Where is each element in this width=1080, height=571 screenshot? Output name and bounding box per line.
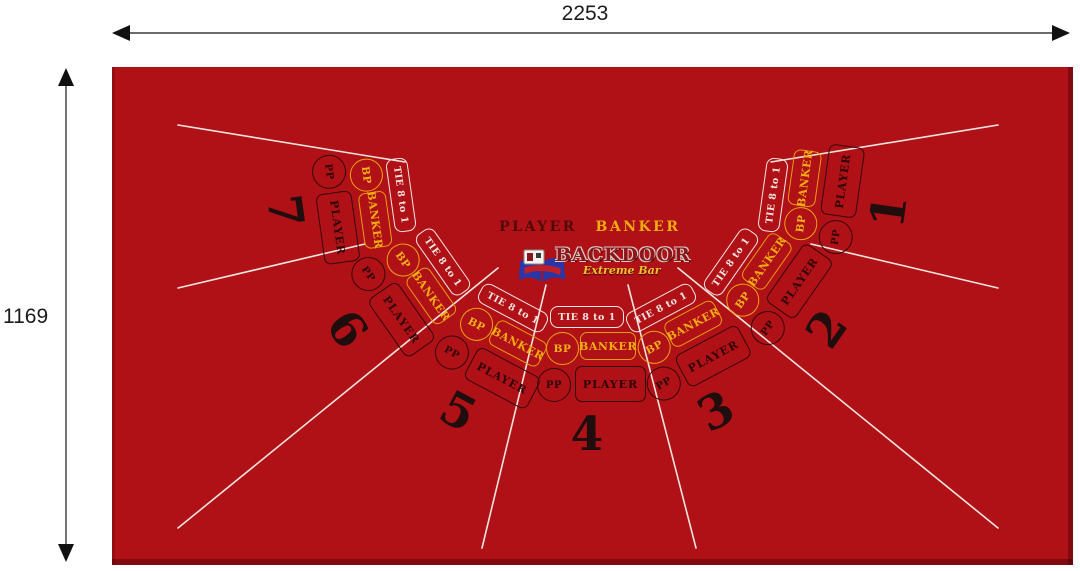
height-dimension-label: 1169 [3, 305, 59, 329]
width-arrow [112, 25, 1070, 41]
logo: BACKDOOR Extreme Bar [514, 244, 684, 288]
seat-number: 7 [245, 123, 324, 299]
center-banker-label: BANKER [583, 219, 693, 235]
logo-tagline: Extreme Bar [583, 264, 661, 277]
bp-bet-circle: BP [348, 156, 385, 193]
layout-drawing: 2253 1169 PLAYER BANKER [0, 0, 1080, 571]
banker-bet-box: BANKER [787, 149, 823, 208]
center-player-label: PLAYER [483, 219, 593, 235]
player-bet-box: PLAYER [575, 366, 646, 402]
player-bet-box: PLAYER [315, 190, 361, 265]
logo-title: BACKDOOR [555, 244, 691, 266]
width-dimension-label: 2253 [505, 2, 665, 26]
player-bet-box: PLAYER [820, 143, 866, 218]
banker-bet-box: BANKER [357, 190, 393, 249]
height-arrow [58, 68, 74, 562]
seat-7: TIE 8 to 1BPBANKERPPPLAYER7 [235, 109, 427, 301]
pp-bet-circle: PP [310, 153, 348, 191]
